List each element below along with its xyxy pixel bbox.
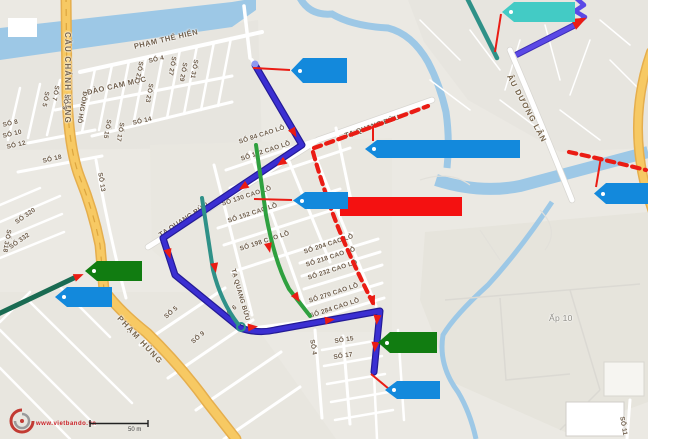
map-tag-cyan[interactable] (502, 2, 575, 22)
map-tag-blue-left[interactable] (55, 287, 112, 307)
map-tag-green-left[interactable] (85, 261, 142, 281)
tag-pin-dot (601, 192, 605, 196)
tag-pin-dot (392, 388, 396, 392)
map-tag-green-bottom[interactable] (378, 332, 437, 353)
blank-label-box[interactable] (8, 18, 37, 37)
scale-bar (88, 418, 152, 430)
highlight-red-box[interactable] (340, 197, 462, 216)
map-screenshot: CẦU CHÁNH HƯNG PHẠM THẾ HIỂN ĐÀO CAM MỘC… (0, 0, 690, 439)
map-canvas[interactable]: CẦU CHÁNH HƯNG PHẠM THẾ HIỂN ĐÀO CAM MỘC… (0, 0, 648, 439)
tag-pin-dot (298, 69, 302, 73)
map-tag-blue-wide[interactable] (365, 140, 520, 158)
tag-pin-dot (372, 147, 376, 151)
vietbando-logo-icon (7, 406, 37, 436)
tag-pin-dot (62, 295, 66, 299)
tag-pin-dot (92, 269, 96, 273)
tag-pin-dot (385, 341, 389, 345)
scale-label: 50 m (128, 427, 141, 433)
map-margin (648, 0, 690, 439)
tag-pin-dot (509, 10, 513, 14)
tag-pin-dot (300, 199, 304, 203)
